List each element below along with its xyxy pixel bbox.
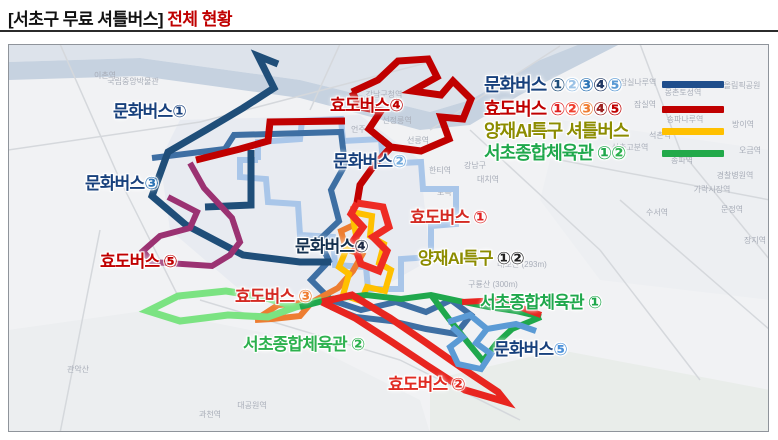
legend-hyodo: 효도버스 ①②③④⑤ (484, 100, 622, 118)
label-yangjae-part-0: 양재AI특구 (418, 249, 497, 268)
label-munhwa-2-part-0: 문화버스 (333, 152, 392, 171)
bg-map-label: 경찰병원역 (717, 170, 754, 180)
label-munhwa-3-part-0: 문화버스 (85, 174, 144, 193)
page-title: [서초구 무료 셔틀버스] 전체 현황 (8, 5, 232, 30)
label-munhwa-3-part-1: ③ (144, 174, 158, 193)
label-munhwa-1: 문화버스① (113, 103, 186, 120)
legend-hyodo-label: 효도버스 (484, 99, 550, 119)
label-yangjae-part-1: ①② (497, 249, 524, 268)
legend-seocho-label: 서초종합체육관 (484, 143, 597, 163)
label-seocho-1: 서초종합체육관 ① (480, 294, 601, 311)
bg-map-label: 올림픽공원 (724, 80, 761, 90)
bg-map-label: 과천역 (199, 409, 221, 419)
label-munhwa-1-part-0: 문화버스① (113, 102, 186, 121)
bg-map-label: 방이역 (732, 119, 754, 129)
bg-map-label: 국립중앙박물관 (107, 76, 159, 86)
label-hyodo-3: 효도버스 ③ (235, 288, 312, 305)
bg-map-label: 송파나루역 (667, 114, 704, 124)
label-munhwa-3: 문화버스③ (85, 175, 158, 192)
label-munhwa-2-part-1: ② (392, 152, 406, 171)
legend-hyodo-num-2: ③ (579, 99, 593, 119)
legend-yangjae: 양재AI특구 셔틀버스 (484, 122, 628, 140)
label-munhwa-5: 문화버스⑤ (494, 341, 567, 358)
bg-map-label: 잠실역 (634, 99, 656, 109)
label-seocho-1-part-0: 서초종합체육관 (480, 293, 588, 312)
legend-munhwa-num-0: ① (550, 75, 564, 95)
legend-munhwa-num-4: ⑤ (607, 75, 621, 95)
legend-munhwa-num-2: ③ (579, 75, 593, 95)
page-title-part-1: 전체 현황 (167, 10, 232, 29)
legend-seocho-num-1: ② (611, 143, 625, 163)
label-munhwa-4-part-1: ④ (354, 237, 368, 256)
legend-yangjae-label: 양재AI특구 셔틀버스 (484, 121, 628, 141)
bg-map-label: 관악산 (67, 364, 90, 374)
legend-hyodo-num-1: ② (565, 99, 579, 119)
legend-hyodo-num-4: ⑤ (607, 99, 621, 119)
bg-map-label: 선릉역 (407, 135, 429, 145)
legend-seocho-line-swatch (662, 150, 724, 157)
label-hyodo-5: 효도버스 ⑤ (100, 253, 177, 270)
label-munhwa-2: 문화버스② (333, 153, 406, 170)
label-hyodo-5-part-1: ⑤ (163, 252, 177, 271)
title-underline (0, 30, 778, 32)
label-hyodo-1-part-0: 효도버스 (410, 208, 473, 227)
bg-map-label: 수서역 (646, 207, 668, 217)
legend-hyodo-num-3: ④ (593, 99, 607, 119)
legend-hyodo-num-0: ① (550, 99, 564, 119)
page-title-part-0: [서초구 무료 셔틀버스] (8, 10, 167, 29)
label-hyodo-2-part-1: ② (451, 375, 465, 394)
bg-map-label: 몽촌토성역 (665, 87, 702, 97)
legend-munhwa-num-3: ④ (593, 75, 607, 95)
label-munhwa-5-part-1: ⑤ (553, 340, 567, 359)
label-seocho-2-part-0: 서초종합체육관 (243, 335, 351, 354)
label-hyodo-3-part-1: ③ (298, 287, 312, 306)
bg-map-label: 가락시장역 (694, 184, 731, 194)
legend-hyodo-line-swatch (662, 106, 724, 113)
legend-seocho: 서초종합체육관 ①② (484, 144, 625, 162)
label-hyodo-1: 효도버스 ① (410, 209, 487, 226)
bg-map-label: 잠실나루역 (620, 77, 657, 87)
label-munhwa-4-part-0: 문화버스 (295, 237, 354, 256)
bg-map-label: 한티역 (429, 165, 451, 175)
label-munhwa-5-part-0: 문화버스 (494, 340, 553, 359)
label-seocho-2-part-1: ② (351, 335, 365, 354)
legend-munhwa: 문화버스 ①②③④⑤ (484, 76, 622, 94)
bg-map-label: 강남구 (464, 160, 486, 170)
bg-map-label: 문정역 (721, 204, 743, 214)
legend-munhwa-label: 문화버스 (484, 75, 550, 95)
legend-seocho-num-0: ① (597, 143, 611, 163)
label-hyodo-4-part-0: 효도버스④ (330, 96, 403, 115)
bg-map-label: 구룡산 (300m) (468, 279, 518, 289)
legend-yangjae-line-swatch (662, 128, 724, 135)
bg-map-label: 대공원역 (237, 400, 266, 410)
label-hyodo-2-part-0: 효도버스 (388, 375, 451, 394)
label-munhwa-4: 문화버스④ (295, 238, 368, 255)
label-seocho-1-part-1: ① (588, 293, 602, 312)
label-hyodo-3-part-0: 효도버스 (235, 287, 298, 306)
legend-munhwa-num-1: ② (565, 75, 579, 95)
label-hyodo-4: 효도버스④ (330, 97, 403, 114)
legend-munhwa-line-swatch (662, 81, 724, 88)
label-yangjae: 양재AI특구 ①② (418, 250, 524, 267)
bg-map-label: 대치역 (477, 174, 499, 184)
label-hyodo-1-part-1: ① (473, 208, 487, 227)
label-hyodo-2: 효도버스 ② (388, 376, 465, 393)
bg-map-label: 오금역 (739, 145, 761, 155)
label-seocho-2: 서초종합체육관 ② (243, 336, 364, 353)
bg-map-label: 선정릉역 (382, 115, 411, 125)
bg-map-label: 장지역 (744, 235, 766, 245)
label-hyodo-5-part-0: 효도버스 (100, 252, 163, 271)
